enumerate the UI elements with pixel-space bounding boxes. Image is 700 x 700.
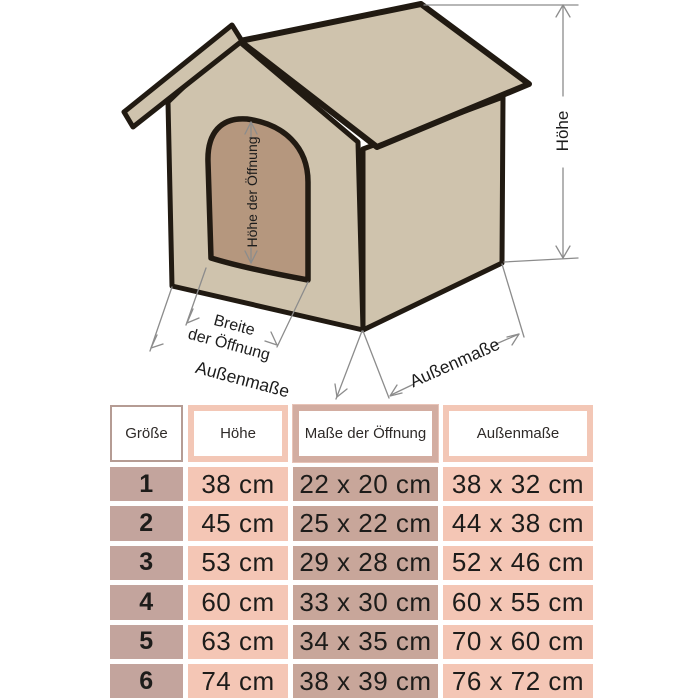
column-header-hoehe: Höhe [188, 405, 288, 462]
table-cell-size: 4 [110, 585, 183, 619]
table-cell-size: 2 [110, 506, 183, 540]
table-cell-hoehe: 63 cm [188, 625, 288, 659]
table-cell-oeffnung: 22 x 20 cm [293, 467, 438, 501]
table-cell-hoehe: 53 cm [188, 546, 288, 580]
table-cell-aussen: 44 x 38 cm [443, 506, 593, 540]
table-cell-oeffnung: 38 x 39 cm [293, 664, 438, 698]
table-cell-size: 1 [110, 467, 183, 501]
table-cell-oeffnung: 25 x 22 cm [293, 506, 438, 540]
table-cell-hoehe: 74 cm [188, 664, 288, 698]
column-header-oeffnung: Maße der Öffnung [293, 405, 438, 462]
size-table: Größe Höhe Maße der Öffnung Außenmaße 1 … [110, 405, 593, 698]
table-cell-hoehe: 60 cm [188, 585, 288, 619]
column-header-aussen: Außenmaße [443, 405, 593, 462]
label-hoehe: Höhe [553, 111, 572, 152]
table-cell-size: 3 [110, 546, 183, 580]
table-cell-hoehe: 38 cm [188, 467, 288, 501]
table-cell-size: 6 [110, 664, 183, 698]
doghouse-dimension-diagram: Höhe Höhe der Öffnung Breite der Öffnung… [0, 0, 700, 410]
table-cell-aussen: 76 x 72 cm [443, 664, 593, 698]
table-cell-aussen: 38 x 32 cm [443, 467, 593, 501]
table-cell-aussen: 60 x 55 cm [443, 585, 593, 619]
label-aussenmasse-right: Außenmaße [407, 334, 503, 391]
table-cell-oeffnung: 34 x 35 cm [293, 625, 438, 659]
table-cell-aussen: 52 x 46 cm [443, 546, 593, 580]
label-aussenmasse-left: Außenmaße [193, 357, 291, 401]
product-dimension-sheet: Höhe Höhe der Öffnung Breite der Öffnung… [0, 0, 700, 700]
column-header-groesse: Größe [110, 405, 183, 462]
table-cell-hoehe: 45 cm [188, 506, 288, 540]
label-hoehe-der-oeffnung: Höhe der Öffnung [243, 136, 260, 247]
dimension-hoehe-extension-bottom [504, 258, 578, 262]
table-cell-oeffnung: 29 x 28 cm [293, 546, 438, 580]
table-cell-size: 5 [110, 625, 183, 659]
table-cell-oeffnung: 33 x 30 cm [293, 585, 438, 619]
table-cell-aussen: 70 x 60 cm [443, 625, 593, 659]
